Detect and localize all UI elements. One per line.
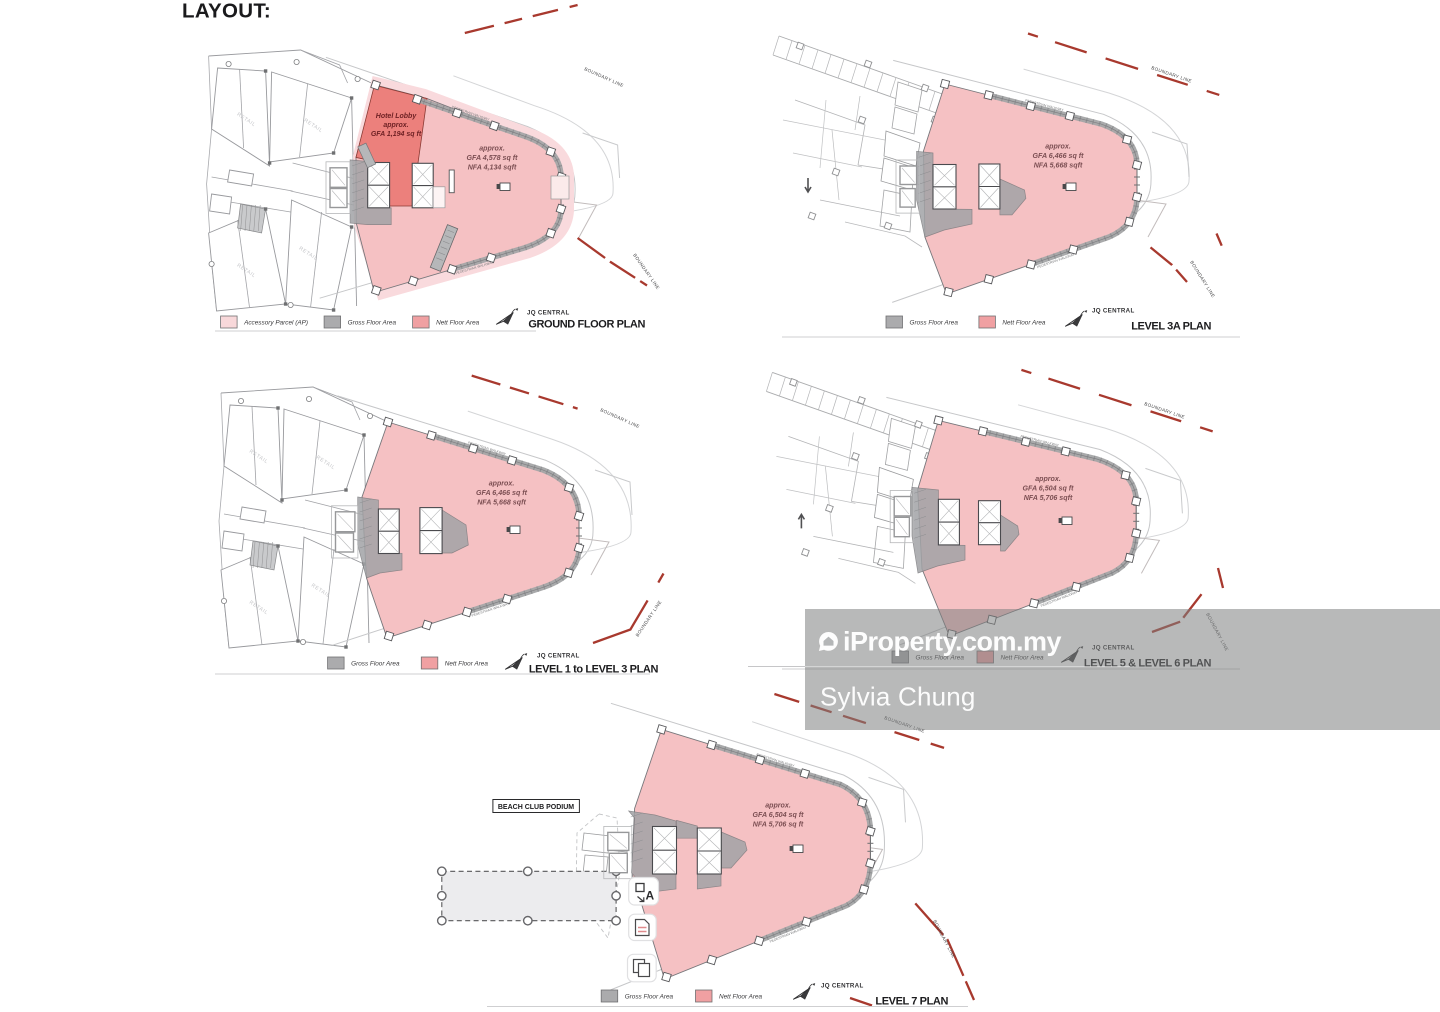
svg-text:NFA 5,668 sqft: NFA 5,668 sqft: [477, 499, 526, 507]
svg-text:LEVEL 7 PLAN: LEVEL 7 PLAN: [875, 996, 948, 1008]
svg-text:approx.: approx.: [1045, 143, 1071, 151]
svg-text:JQ CENTRAL: JQ CENTRAL: [527, 310, 570, 317]
svg-text:Nett Floor Area: Nett Floor Area: [436, 320, 480, 327]
svg-text:Nett Floor Area: Nett Floor Area: [445, 661, 489, 668]
svg-text:BEACH CLUB PODIUM: BEACH CLUB PODIUM: [498, 804, 574, 811]
svg-text:Hotel Lobby: Hotel Lobby: [376, 113, 418, 120]
svg-text:Gross Floor Area: Gross Floor Area: [351, 661, 400, 668]
svg-text:approx.: approx.: [479, 145, 505, 153]
svg-text:JQ CENTRAL: JQ CENTRAL: [821, 983, 864, 990]
svg-text:NFA 5,668 sqft: NFA 5,668 sqft: [1034, 162, 1083, 170]
svg-text:GROUND FLOOR PLAN: GROUND FLOOR PLAN: [528, 319, 645, 331]
svg-text:NFA 5,706 sqft: NFA 5,706 sqft: [1024, 494, 1073, 502]
svg-text:approx.: approx.: [1035, 475, 1061, 483]
svg-text:JQ CENTRAL: JQ CENTRAL: [1092, 308, 1135, 315]
svg-text:approx.: approx.: [765, 802, 791, 810]
svg-text:LEVEL 3A PLAN: LEVEL 3A PLAN: [1131, 321, 1211, 333]
svg-text:NFA 4,134 sqft: NFA 4,134 sqft: [468, 164, 517, 172]
svg-text:approx.: approx.: [489, 480, 515, 488]
svg-text:iProperty.com.my: iProperty.com.my: [843, 627, 1062, 657]
svg-text:GFA 1,194 sq ft: GFA 1,194 sq ft: [371, 131, 422, 138]
svg-text:GFA 6,504 sq ft: GFA 6,504 sq ft: [753, 811, 805, 819]
svg-text:GFA 6,466 sq ft: GFA 6,466 sq ft: [476, 489, 528, 497]
svg-text:GFA 6,466 sq ft: GFA 6,466 sq ft: [1033, 152, 1085, 160]
svg-text:A: A: [646, 889, 655, 903]
svg-text:GFA 4,578 sq ft: GFA 4,578 sq ft: [467, 154, 519, 162]
svg-text:Accessory Parcel (AP): Accessory Parcel (AP): [243, 320, 308, 327]
svg-text:Nett Floor Area: Nett Floor Area: [719, 994, 763, 1001]
svg-text:JQ CENTRAL: JQ CENTRAL: [537, 653, 580, 660]
svg-text:Sylvia Chung: Sylvia Chung: [820, 682, 976, 712]
svg-text:GFA 6,504 sq ft: GFA 6,504 sq ft: [1023, 485, 1075, 493]
svg-text:approx.: approx.: [383, 122, 408, 129]
svg-text:Nett Floor Area: Nett Floor Area: [1002, 320, 1046, 327]
svg-text:LAYOUT:: LAYOUT:: [182, 0, 271, 23]
svg-text:NFA 5,706 sq ft: NFA 5,706 sq ft: [753, 821, 804, 829]
svg-text:Gross Floor Area: Gross Floor Area: [910, 320, 959, 327]
svg-text:Gross Floor Area: Gross Floor Area: [625, 994, 674, 1001]
svg-text:Gross Floor Area: Gross Floor Area: [348, 320, 397, 327]
